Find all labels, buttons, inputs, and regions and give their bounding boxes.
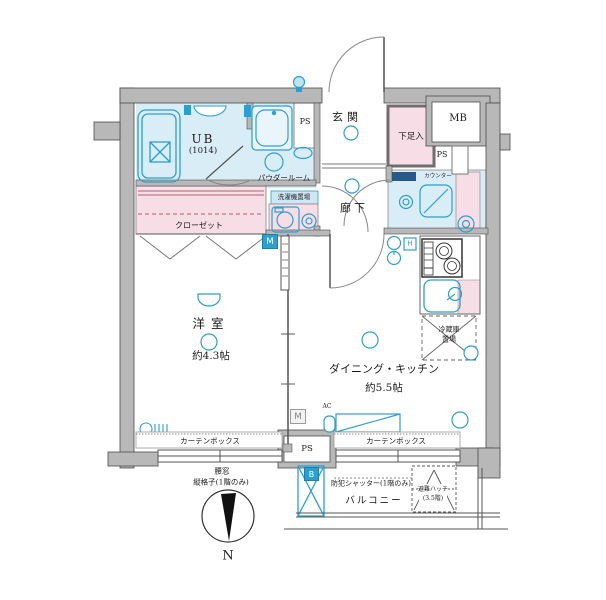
label-powder-room: パウダールーム <box>258 174 310 182</box>
label-unit-bath: UB <box>192 133 215 145</box>
label-curtain-box-right: カーテンボックス <box>366 437 426 445</box>
label-ps-bottom: PS <box>301 445 313 454</box>
label-north: N <box>222 550 233 563</box>
label-window-note-1: 腰窓 <box>215 467 230 475</box>
label-ac: AC <box>323 404 332 410</box>
ps-right-door <box>452 146 468 174</box>
floor-plan: UB (1014) パウダールーム 洗濯機置場 クローゼット 玄関 下足入 MB… <box>0 0 606 600</box>
label-laundry: 洗濯機置場 <box>278 194 311 201</box>
label-western-room: 洋室 <box>192 318 229 331</box>
label-fridge-1: 冷蔵庫 <box>439 327 460 334</box>
label-unit-bath-size: (1014) <box>189 147 217 156</box>
label-h-mark: H <box>407 241 412 248</box>
label-window-note-2: 縦格子(1階のみ) <box>193 478 249 486</box>
label-shoe-cabinet: 下足入 <box>398 133 424 142</box>
floor-plan-drawing <box>0 0 606 600</box>
label-escape-hatch-2: (3.5階) <box>423 496 443 502</box>
label-escape-hatch-1: 避難ハッチ <box>418 487 448 493</box>
label-meter-box: MB <box>449 114 467 124</box>
meter-chip-gray: M <box>290 409 306 424</box>
label-security-shutter: 防犯シャッター(1階のみ) <box>331 481 411 488</box>
label-closet: クローゼット <box>175 222 223 230</box>
label-dining-kitchen-size: 約5.5帖 <box>365 383 403 394</box>
label-dining-kitchen: ダイニング・キッチン <box>329 364 439 375</box>
closet-folding-doors <box>140 236 266 259</box>
label-ps-right: PS <box>437 151 448 159</box>
label-fridge-2: 置場 <box>442 337 456 344</box>
entrance-step-line <box>322 164 386 168</box>
b-mark-chip: B <box>304 467 319 481</box>
compass <box>202 490 254 542</box>
label-western-room-size: 約4.3帖 <box>192 351 230 362</box>
label-balcony: バルコニー <box>345 496 402 506</box>
meter-chip-blue: M <box>262 234 278 249</box>
label-ps-top: PS <box>300 118 311 126</box>
label-entrance: 玄関 <box>332 112 362 123</box>
label-curtain-box-left: カーテンボックス <box>180 437 240 445</box>
label-corridor: 廊下 <box>340 203 368 214</box>
label-counter: カウンター <box>424 174 452 180</box>
air-conditioner <box>324 414 400 432</box>
